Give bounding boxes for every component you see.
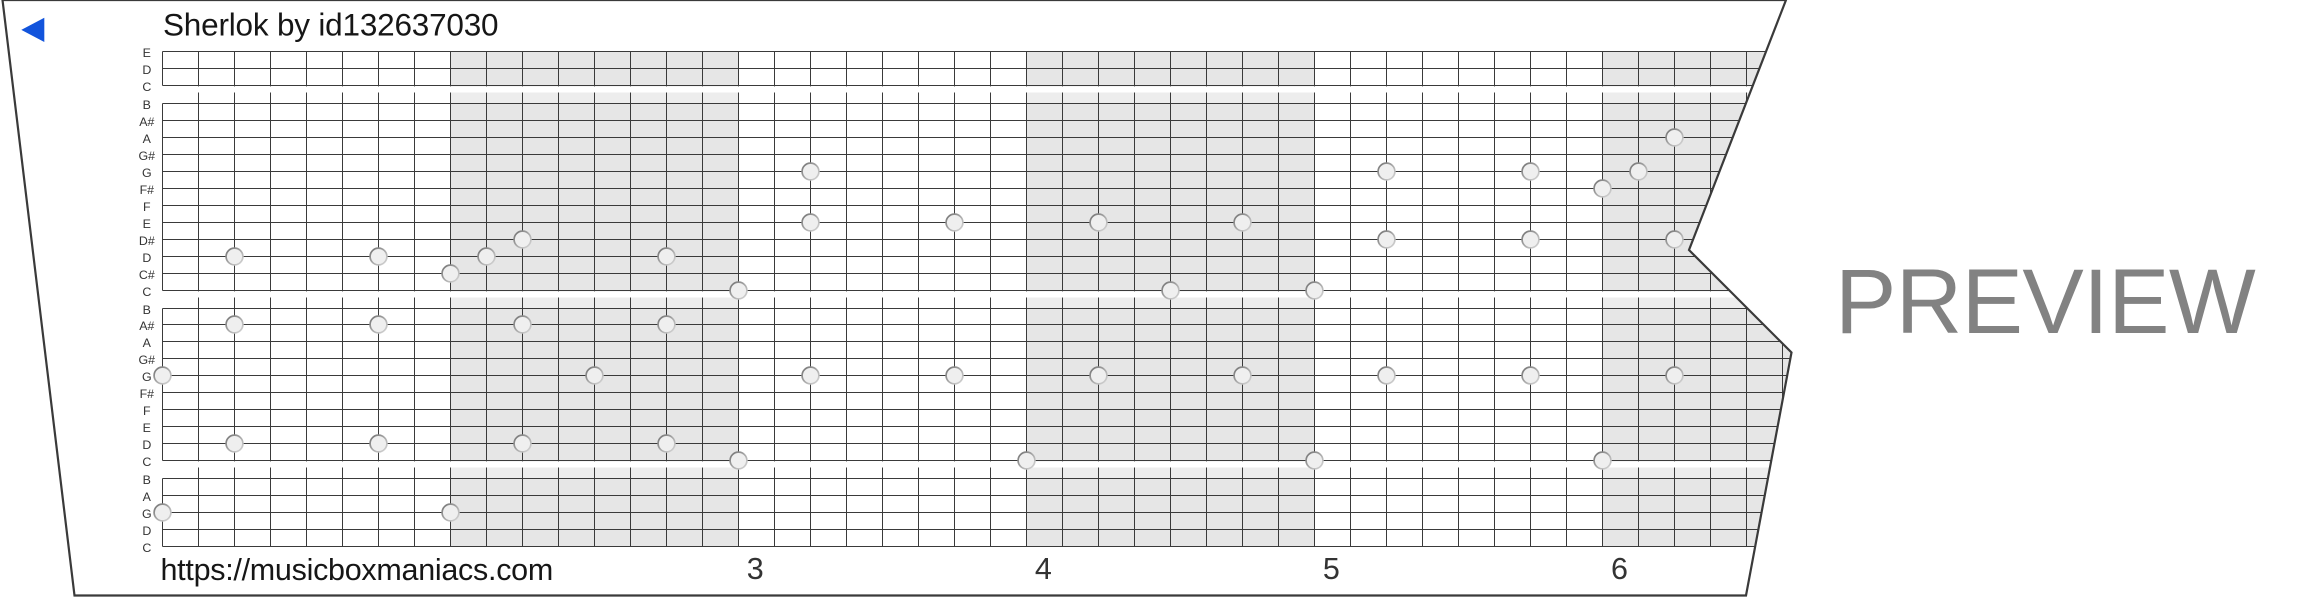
svg-text:E: E bbox=[143, 217, 151, 231]
svg-text:5: 5 bbox=[1323, 552, 1340, 586]
svg-text:F: F bbox=[143, 200, 151, 214]
svg-text:F#: F# bbox=[140, 183, 155, 197]
svg-text:C#: C# bbox=[139, 268, 155, 282]
svg-text:G#: G# bbox=[139, 353, 156, 367]
svg-text:4: 4 bbox=[1035, 552, 1052, 586]
svg-text:A#: A# bbox=[139, 115, 154, 129]
svg-text:C: C bbox=[142, 80, 151, 94]
svg-text:PREVIEW: PREVIEW bbox=[1835, 251, 2256, 353]
svg-text:A: A bbox=[143, 132, 152, 146]
svg-text:E: E bbox=[143, 421, 151, 435]
svg-text:C: C bbox=[142, 541, 151, 555]
svg-text:G: G bbox=[142, 166, 152, 180]
svg-text:A#: A# bbox=[139, 319, 154, 333]
svg-text:G: G bbox=[142, 507, 152, 521]
svg-text:A: A bbox=[143, 490, 152, 504]
svg-text:G: G bbox=[142, 370, 152, 384]
svg-text:D: D bbox=[142, 438, 151, 452]
svg-text:G#: G# bbox=[139, 149, 156, 163]
svg-text:https://musicboxmaniacs.com: https://musicboxmaniacs.com bbox=[161, 553, 553, 587]
svg-text:D: D bbox=[142, 251, 151, 265]
svg-text:B: B bbox=[143, 98, 151, 112]
svg-text:6: 6 bbox=[1611, 552, 1628, 586]
svg-text:D: D bbox=[142, 63, 151, 77]
svg-text:D#: D# bbox=[139, 234, 155, 248]
svg-text:F: F bbox=[143, 404, 151, 418]
svg-text:B: B bbox=[143, 473, 151, 487]
svg-text:C: C bbox=[142, 455, 151, 469]
svg-text:A: A bbox=[143, 336, 152, 350]
svg-text:B: B bbox=[143, 303, 151, 317]
svg-text:C: C bbox=[142, 285, 151, 299]
svg-text:F#: F# bbox=[140, 387, 155, 401]
svg-text:E: E bbox=[143, 46, 151, 60]
svg-text:Sherlok by id132637030: Sherlok by id132637030 bbox=[163, 7, 498, 43]
svg-text:3: 3 bbox=[747, 552, 764, 586]
svg-text:D: D bbox=[142, 524, 151, 538]
